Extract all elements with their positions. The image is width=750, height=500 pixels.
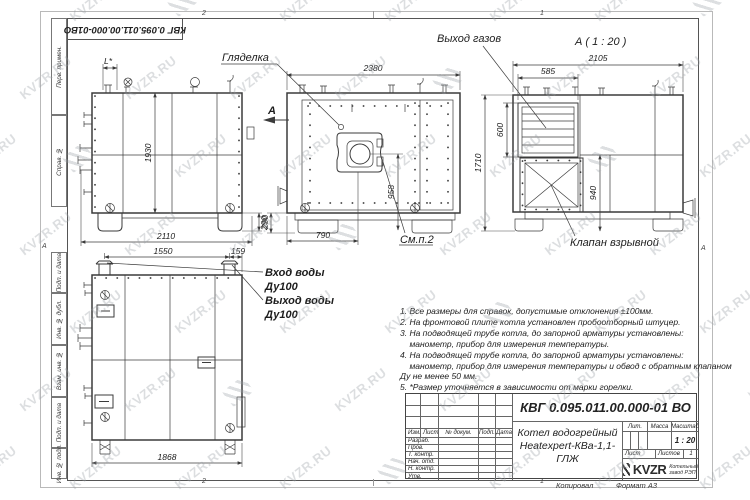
tb-row-razrab: Разраб. <box>406 438 439 445</box>
tb-company: KVZR Котельный завод РЭП <box>623 459 698 480</box>
tb-row-utv: Утв. <box>406 473 439 480</box>
tb-cell <box>496 394 513 406</box>
burner-plate <box>337 133 383 172</box>
tb-lit-cell <box>631 432 639 450</box>
dim-1868: 1868 <box>92 443 242 467</box>
tb-lit-cell <box>639 432 648 450</box>
tb-cell <box>439 438 479 445</box>
dim-text: 1868 <box>158 452 177 462</box>
tb-sheets-value: 1 <box>684 450 698 459</box>
technical-notes: 1. Все размеры для справок, допустимые о… <box>400 306 732 393</box>
tb-cell <box>496 466 513 473</box>
kvzr-logo-text: KVZR <box>633 462 666 477</box>
product-name-line2: Heatexpert-КВа-1,1-ГЛЖ <box>513 440 622 466</box>
sight-glass-callout: Гляделка <box>221 52 339 125</box>
explosion-valve-label: Клапан взрывной <box>570 237 659 249</box>
left-pipe-stub <box>278 186 287 206</box>
tb-cell <box>421 417 439 429</box>
tb-cell <box>439 445 479 452</box>
dim-text: 2380 <box>363 63 383 73</box>
tb-cell <box>479 473 496 480</box>
tb-cell <box>496 438 513 445</box>
tb-cell <box>479 394 496 406</box>
tb-row-nachotd: Нач. отд. <box>406 459 439 466</box>
dim-940: 940 <box>588 155 600 231</box>
tb-cell <box>479 406 496 417</box>
tb-cell <box>421 406 439 417</box>
tb-cell <box>439 417 479 429</box>
tb-cell <box>479 452 496 459</box>
dim-text: 159 <box>231 246 245 256</box>
top-fittings <box>523 80 675 95</box>
tb-scale-label: Масштаб <box>672 422 698 432</box>
tb-cell <box>406 417 421 429</box>
kvzr-text-watermark: KVZR.RU <box>0 131 19 181</box>
water-outlet-label: Выход воды <box>265 295 335 307</box>
gas-base-feet <box>515 212 683 231</box>
gas-outlet-label: Выход газов <box>437 33 501 45</box>
explosion-valve-panel <box>520 158 583 212</box>
tb-lit-label: Лит. <box>623 422 648 432</box>
tb-scale-value: 1 : 20 <box>672 432 698 450</box>
tb-cell <box>439 406 479 417</box>
tb-cell <box>496 473 513 480</box>
dim-text: 2105 <box>588 53 608 63</box>
dim-text: 1550 <box>154 246 173 256</box>
gas-side-view-drawing: А ( 1 : 20 ) Выход газов <box>425 22 710 250</box>
zone-divider-bottom <box>373 479 374 486</box>
copied-label: Копировал <box>556 481 593 490</box>
dim-159: 159 <box>230 246 246 272</box>
dim-2105: 2105 <box>513 53 683 92</box>
tb-cell <box>406 394 421 406</box>
dim-text: 290 <box>259 216 269 231</box>
dim-1550: 1550 <box>105 246 230 259</box>
zone-divider-top <box>373 11 374 18</box>
tb-sheets-label: Листов <box>656 450 684 459</box>
tb-cell <box>496 406 513 417</box>
note-line: 4. На подводящей трубе котла, до запорно… <box>400 350 732 361</box>
water-inlet-dn: Ду100 <box>264 281 299 293</box>
tb-cell <box>421 394 439 406</box>
drawing-sheet: { "watermark": { "text": "KVZR.RU" }, "f… <box>0 0 750 500</box>
tb-cell <box>496 452 513 459</box>
tb-cell <box>479 438 496 445</box>
boiler-gas-outline <box>513 95 683 212</box>
dim-1930: 1930 <box>143 93 155 213</box>
tb-row-prov: Пров. <box>406 445 439 452</box>
right-pipe-stub <box>683 198 695 218</box>
company-name-line2: завод РЭП <box>669 470 698 476</box>
water-pipes <box>96 261 238 275</box>
tb-row-tkontr: Т. контр. <box>406 452 439 459</box>
sight-glass <box>338 124 343 129</box>
view-direction-arrow: А <box>263 105 289 124</box>
tb-header-sign: Подп. <box>479 429 496 438</box>
tb-cell <box>496 445 513 452</box>
louver-panel <box>518 103 578 157</box>
tb-cell <box>439 459 479 466</box>
tb-cell <box>439 394 479 406</box>
tb-header-doc: № докум. <box>439 429 479 438</box>
note-line: 5. *Размер уточняется в зависимости от м… <box>400 382 732 393</box>
tb-cell <box>496 459 513 466</box>
dim-290-front: 290 <box>259 213 295 233</box>
tb-cell <box>406 406 421 417</box>
dim-text: 585 <box>541 66 555 76</box>
dim-text: 600 <box>495 123 505 137</box>
boiler-rear-outline <box>92 275 242 440</box>
tb-cell <box>479 466 496 473</box>
tb-header-date: Дата <box>496 429 513 438</box>
kvzr-text-watermark: KVZR.RU <box>0 443 19 493</box>
format-label: Формат А3 <box>616 481 657 490</box>
company-name-line1: Котельный <box>669 464 698 470</box>
product-name-line1: Котел водогрейный <box>513 427 622 440</box>
dim-text: L* <box>104 56 113 66</box>
dim-text: 2110 <box>156 231 176 241</box>
water-inlet-label: Вход воды <box>265 267 325 279</box>
title-block: Изм. Лист № докум. Подп. Дата Разраб. Пр… <box>405 393 697 479</box>
tb-mass-cell <box>648 432 672 450</box>
tb-cell <box>479 445 496 452</box>
dim-600: 600 <box>495 103 518 157</box>
tb-cell <box>479 417 496 429</box>
dim-790: 790 <box>287 172 358 245</box>
dim-1710: 1710 <box>473 95 515 231</box>
tb-mass-label: Масса <box>648 422 672 432</box>
tb-lit-cell <box>623 432 631 450</box>
rear-feet <box>100 397 245 454</box>
note-line: 3. На подводящей трубе котла, до запорно… <box>400 328 732 339</box>
water-outlet-dn: Ду100 <box>264 309 299 321</box>
note-line: 1. Все размеры для справок, допустимые о… <box>400 306 732 317</box>
note-line: манометр, прибор для измерения температу… <box>400 339 732 350</box>
kvzr-text-watermark: KVZR.RU <box>0 0 19 24</box>
tb-cell <box>479 459 496 466</box>
kvzr-logo-icon <box>623 463 630 476</box>
tb-sheet-label: Лист <box>623 450 656 459</box>
note-line: Ду не менее 50 мм. <box>400 371 732 382</box>
tb-cell <box>439 473 479 480</box>
rear-left-fittings <box>78 282 92 426</box>
rear-view-drawing: 1550 159 1868 Вход воды Ду100 Выход воды… <box>55 245 335 480</box>
note-line: манометр, прибор для измерения температу… <box>400 361 732 372</box>
explosion-valve-callout: Клапан взрывной <box>551 185 659 249</box>
tb-header-izm: Изм. <box>406 429 421 438</box>
note-line: 2. На фронтовой плите котла установлен п… <box>400 317 732 328</box>
tb-row-nkontr: Н. контр. <box>406 466 439 473</box>
tb-cell <box>496 417 513 429</box>
dim-text: 790 <box>316 230 330 240</box>
tb-cell <box>439 452 479 459</box>
dim-958: 958 <box>370 154 403 230</box>
dim-text: 940 <box>588 186 598 200</box>
sight-glass-label: Гляделка <box>222 52 269 64</box>
zone-number: 1 <box>540 10 544 17</box>
rear-hatches <box>95 291 235 433</box>
tb-product-name: Котел водогрейный Heatexpert-КВа-1,1-ГЛЖ <box>513 422 623 480</box>
view-a-title: А ( 1 : 20 ) <box>574 36 627 48</box>
dim-text: 1930 <box>143 143 153 162</box>
tb-header-list: Лист <box>421 429 439 438</box>
tb-cell <box>439 466 479 473</box>
zone-number: 2 <box>202 10 206 17</box>
view-arrow-label: А <box>267 105 276 117</box>
tb-designation: КВГ 0.095.011.00.000-01 ВО <box>513 394 698 422</box>
dim-text: 1710 <box>473 153 483 172</box>
